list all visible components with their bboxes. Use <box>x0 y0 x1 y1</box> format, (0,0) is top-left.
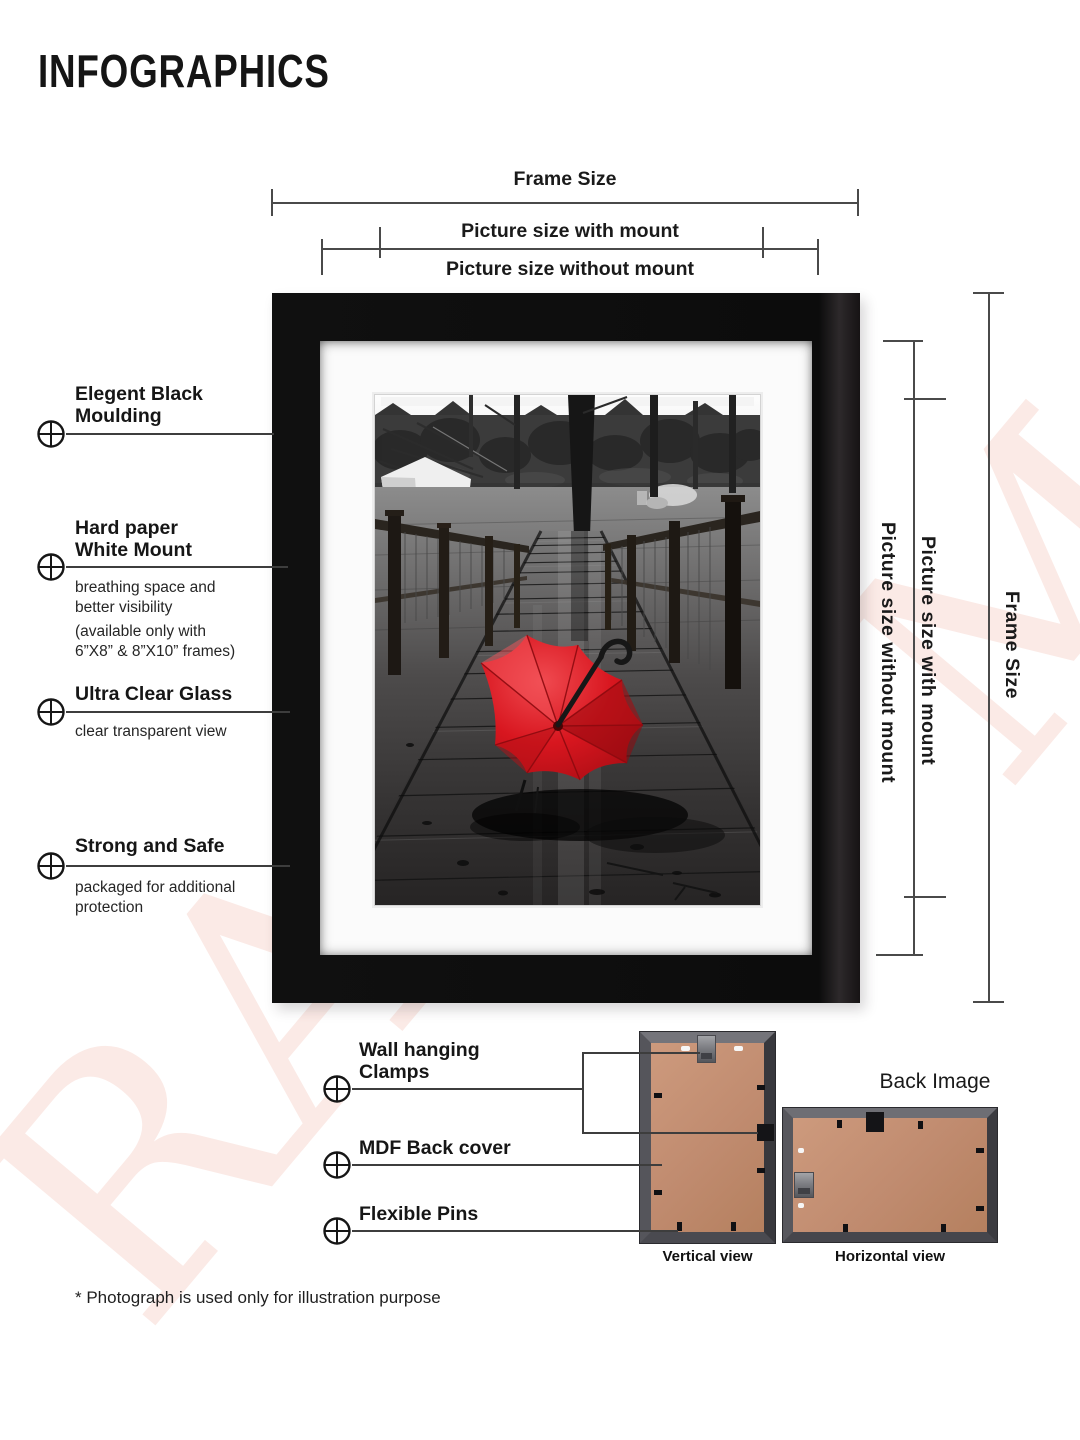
plus-circle-icon <box>322 1074 352 1104</box>
feature-title-strong: Strong and Safe <box>75 836 225 858</box>
flexible-pin <box>654 1190 662 1195</box>
callout-line <box>352 1230 678 1232</box>
feature-detail: packaged for additional protection <box>75 878 235 918</box>
callout-line <box>66 433 274 435</box>
flexible-pin <box>757 1168 765 1173</box>
footnote: * Photograph is used only for illustrati… <box>75 1288 441 1308</box>
feature-title-clamps: Wall hanging Clamps <box>359 1040 480 1083</box>
tick <box>973 1001 1004 1003</box>
flexible-pin <box>757 1085 765 1090</box>
plus-circle-icon <box>322 1150 352 1180</box>
flexible-pin <box>837 1120 842 1128</box>
dim-label-without-mount-right: Picture size without mount <box>876 498 899 808</box>
dim-label-with-mount-top: Picture size with mount <box>322 220 818 243</box>
tick <box>857 189 859 216</box>
plus-circle-icon <box>36 552 66 582</box>
infographic-page: RA M INFOGRAPHICS Frame Size Picture siz… <box>0 0 1080 1440</box>
feature-title-mdf: MDF Back cover <box>359 1138 511 1160</box>
white-mount <box>320 341 812 955</box>
plus-circle-icon <box>36 697 66 727</box>
wall-hanging-clamp-side <box>794 1172 814 1198</box>
hanger-hole <box>798 1148 804 1153</box>
tick <box>904 896 946 898</box>
feature-title-pins: Flexible Pins <box>359 1204 478 1226</box>
dim-label-frame-size-right: Frame Size <box>1000 557 1023 733</box>
feature-detail: (available only with 6”X8” & 8”X10” fram… <box>75 622 235 662</box>
back-frame-vertical-view <box>640 1032 775 1243</box>
flexible-pin <box>976 1148 984 1153</box>
tick <box>762 227 764 258</box>
horizontal-view-label: Horizontal view <box>783 1248 997 1265</box>
tick <box>904 398 946 400</box>
callout-line <box>352 1088 582 1090</box>
plus-circle-icon <box>322 1216 352 1246</box>
callout-bracket-bottom <box>582 1132 758 1134</box>
umbrella-boardwalk-photo <box>375 395 760 905</box>
hanger-hole <box>681 1046 690 1051</box>
dim-line-picture-right <box>913 341 915 955</box>
callout-line <box>66 711 290 713</box>
feature-detail: breathing space and better visibility <box>75 578 215 618</box>
callout-line <box>66 566 288 568</box>
callout-line <box>66 865 290 867</box>
tick <box>876 954 923 956</box>
hanger-hole <box>798 1203 804 1208</box>
flexible-pin <box>976 1206 984 1211</box>
plus-circle-icon <box>36 851 66 881</box>
wall-hanging-clamp-side <box>757 1124 774 1141</box>
dim-line-picture-top <box>322 248 818 250</box>
tick <box>973 292 1004 294</box>
tick <box>271 189 273 216</box>
callout-line <box>352 1164 662 1166</box>
feature-title-moulding: Elegent Black Moulding <box>75 384 203 427</box>
dim-label-with-mount-right: Picture size with mount <box>916 498 939 804</box>
feature-title-mount: Hard paper White Mount <box>75 518 192 561</box>
flexible-pin <box>654 1093 662 1098</box>
flexible-pin <box>731 1222 736 1231</box>
back-image-heading: Back Image <box>855 1070 1015 1094</box>
back-frame-horizontal-view <box>783 1108 997 1242</box>
dim-line-frame-size-top <box>272 202 858 204</box>
photo-print <box>375 395 760 905</box>
wall-hanging-clamp-top <box>866 1112 884 1132</box>
flexible-pin <box>941 1224 946 1232</box>
page-title: INFOGRAPHICS <box>38 44 330 98</box>
vertical-view-label: Vertical view <box>640 1248 775 1265</box>
dim-label-frame-size-top: Frame Size <box>272 168 858 191</box>
tick <box>379 227 381 258</box>
hanger-hole <box>734 1046 743 1051</box>
flexible-pin <box>918 1121 923 1129</box>
feature-detail: clear transparent view <box>75 722 227 742</box>
dim-line-frame-size-right <box>988 293 990 1003</box>
callout-bracket-top <box>582 1052 700 1054</box>
tick <box>883 340 923 342</box>
feature-title-glass: Ultra Clear Glass <box>75 684 232 706</box>
wall-hanging-clamp-top <box>697 1035 716 1063</box>
picture-frame <box>272 293 860 1003</box>
dim-label-without-mount-top: Picture size without mount <box>322 258 818 281</box>
flexible-pin <box>843 1224 848 1232</box>
plus-circle-icon <box>36 419 66 449</box>
callout-bracket-vertical <box>582 1052 584 1133</box>
